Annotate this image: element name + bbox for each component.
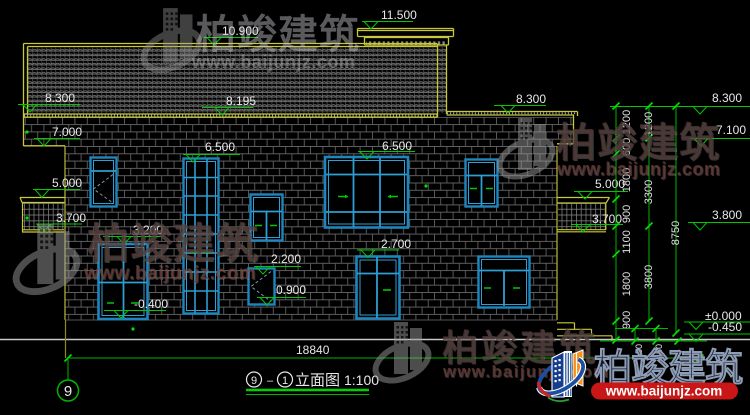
svg-text:-0.400: -0.400 <box>134 297 168 311</box>
svg-text:8.195: 8.195 <box>226 94 256 108</box>
svg-text:8.300: 8.300 <box>516 92 546 106</box>
svg-text:3.700: 3.700 <box>56 211 86 225</box>
svg-text:8750: 8750 <box>670 221 682 245</box>
svg-text:8.300: 8.300 <box>712 91 742 105</box>
svg-text:2.200: 2.200 <box>271 252 301 266</box>
svg-text:9: 9 <box>64 383 72 400</box>
svg-text:6.500: 6.500 <box>205 140 235 154</box>
svg-text:9: 9 <box>251 375 257 387</box>
svg-text:柏竣建筑: 柏竣建筑 <box>196 13 360 57</box>
svg-text:5.000: 5.000 <box>52 176 82 190</box>
svg-text:-0.450: -0.450 <box>708 320 742 334</box>
svg-text:8.300: 8.300 <box>45 91 75 105</box>
svg-text:18840: 18840 <box>296 343 330 357</box>
svg-text:3800: 3800 <box>643 265 655 289</box>
svg-text:立面图: 立面图 <box>295 372 340 389</box>
svg-text:11.500: 11.500 <box>381 8 417 22</box>
svg-text:1100: 1100 <box>621 230 633 254</box>
svg-text:www.baijunjz.com: www.baijunjz.com <box>556 159 720 179</box>
svg-text:900: 900 <box>621 205 633 223</box>
svg-text:1800: 1800 <box>621 272 633 296</box>
svg-text:www.baijunjz.com: www.baijunjz.com <box>191 52 355 72</box>
svg-text:–: – <box>267 375 274 387</box>
svg-text:1: 1 <box>282 375 288 387</box>
svg-text:3.800: 3.800 <box>712 208 742 222</box>
svg-text:2.700: 2.700 <box>381 237 411 251</box>
svg-text:900: 900 <box>621 311 633 329</box>
svg-text:0.900: 0.900 <box>276 283 306 297</box>
svg-text:www.baijunjz.com: www.baijunjz.com <box>605 384 723 399</box>
svg-text:柏竣建筑: 柏竣建筑 <box>87 220 259 267</box>
svg-text:3300: 3300 <box>643 180 655 204</box>
svg-text:7.000: 7.000 <box>52 125 82 139</box>
svg-text:www.baijunjz.com: www.baijunjz.com <box>83 263 256 284</box>
svg-text:6.500: 6.500 <box>382 139 412 153</box>
